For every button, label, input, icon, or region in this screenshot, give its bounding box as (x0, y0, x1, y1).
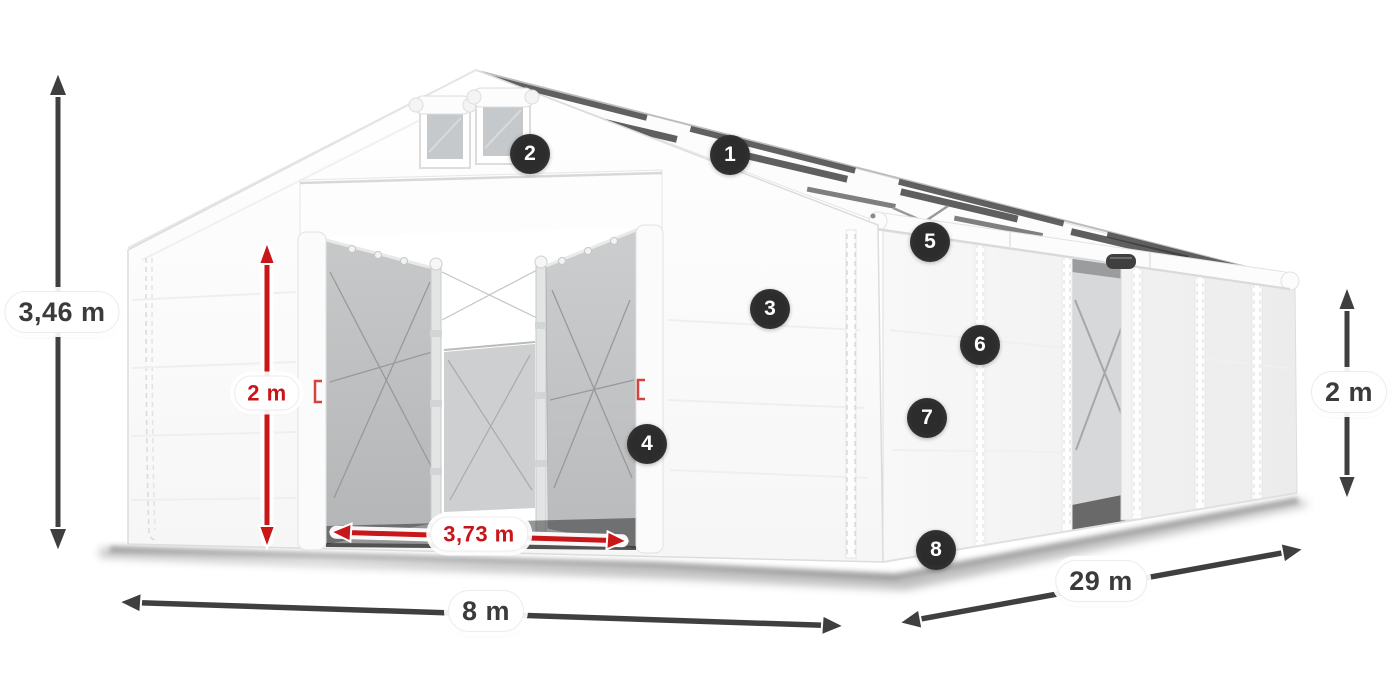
side-wall-opening (1072, 253, 1132, 530)
portal-header (300, 170, 662, 238)
entrance-interior (326, 228, 636, 550)
dimension-label-entrance-width: 3,73 m (430, 517, 528, 552)
marker-8: 8 (916, 530, 956, 570)
dimension-label-total-height: 3,46 m (4, 291, 119, 333)
marker-1: 1 (710, 135, 750, 175)
tent-illustration (0, 0, 1400, 700)
dimension-label-entrance-height: 2 m (234, 376, 299, 411)
open-door-right (546, 230, 636, 548)
dimension-label-side-height: 2 m (1311, 371, 1387, 413)
dimension-label-tent-length: 29 m (1055, 560, 1147, 602)
corner-bolt (871, 214, 876, 219)
dimension-label-tent-width: 8 m (448, 590, 524, 632)
tent-dimension-diagram: 3,46 m 2 m 3,73 m 8 m 29 m 2 m 1 2 3 4 5… (0, 0, 1400, 700)
marker-7: 7 (907, 398, 947, 438)
marker-3: 3 (750, 289, 790, 329)
marker-2: 2 (510, 134, 550, 174)
marker-5: 5 (910, 222, 950, 262)
frame-pole (430, 258, 442, 538)
gable-vent-left (409, 96, 477, 168)
marker-6: 6 (960, 325, 1000, 365)
rolled-cover (1106, 254, 1136, 269)
frame-pole (535, 256, 547, 535)
marker-4: 4 (627, 424, 667, 464)
open-door-left (326, 240, 436, 544)
